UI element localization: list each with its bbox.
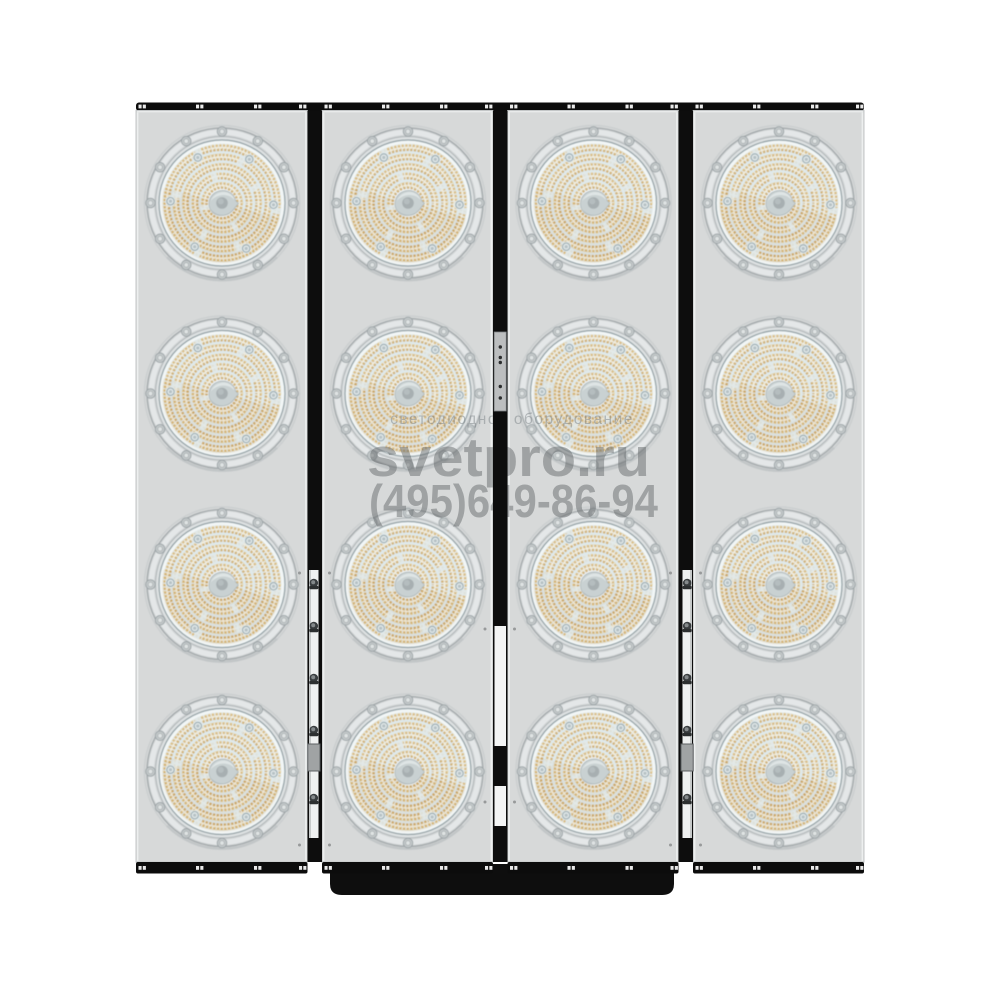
svg-text:(495)649-86-94: (495)649-86-94 bbox=[369, 475, 658, 527]
